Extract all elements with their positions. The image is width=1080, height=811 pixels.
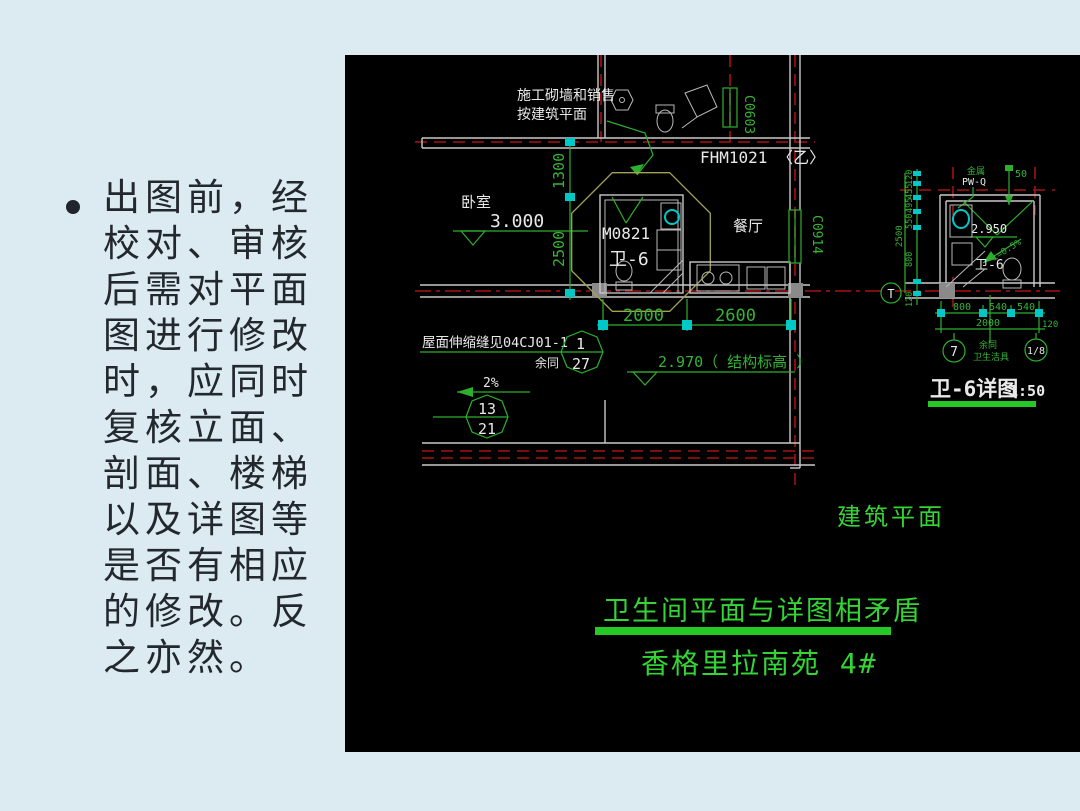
dim-bottom: 800 [953, 302, 971, 313]
dim-left-bottom: 120 [905, 292, 915, 307]
upper-bathroom-fixtures [611, 85, 737, 132]
grid-8-label: 1/8 [1027, 346, 1045, 357]
paragraph-line: 后需对平面 [103, 268, 333, 314]
paragraph-line: 出图前，经 [103, 176, 333, 222]
bullet-dot [66, 200, 80, 214]
bedroom-level: 3.000 [490, 211, 544, 232]
ref2-den: 21 [478, 420, 496, 438]
dim-left-total: 2500 [895, 225, 905, 247]
rest-same: 余同 [535, 355, 559, 370]
paragraph-line: 之亦然。 [103, 636, 333, 682]
pipe-50: 50 [1015, 169, 1027, 180]
horizontal-dimension: 2000 2600 [597, 299, 796, 331]
paragraph-line: 复核立面、 [103, 406, 333, 452]
toilet-icon [1003, 258, 1021, 280]
floor-plan: 施工砌墙和销售 按建筑平面 C0603 FHM1021 〈乙〉 卧室 3.000… [415, 55, 945, 531]
dim-bottom: 540 [1017, 302, 1035, 313]
window-c0603-label: C0603 [741, 95, 756, 134]
sink-icon [747, 267, 765, 289]
plan-caption: 建筑平面 [837, 503, 945, 531]
dim-left: 120 [905, 170, 915, 185]
bath-name-label: 卫-6 [609, 249, 649, 270]
dim-bottom-total: 2000 [976, 318, 1000, 329]
dim-bottom: 540 [989, 302, 1007, 313]
small-note-2: 卫生洁具 [973, 351, 1009, 363]
sink-icon [767, 267, 785, 289]
roof-note: 屋面伸缩缝见04CJ01-1 1 27 余同 [420, 331, 603, 373]
detail-title-text: 卫-6详图 [930, 377, 1018, 401]
dim-bottom-right: 120 [1042, 320, 1058, 330]
window-c0914-label: C0914 [809, 215, 824, 254]
column [939, 283, 955, 298]
dim-2500: 2500 [550, 231, 568, 267]
bathroom: M0821 卫-6 [600, 195, 683, 293]
paragraph-line: 校对、审核 [103, 222, 333, 268]
bedroom-text: 卧室 [461, 193, 491, 211]
slope-text: 2% [483, 376, 499, 391]
paragraph-line: 以及详图等 [103, 498, 333, 544]
paragraph-line: 图进行修改 [103, 314, 333, 360]
title-underline [928, 401, 1036, 407]
detail-title: 卫-6详图 1:50 [928, 377, 1045, 407]
level-2970: 2.970（ 结构标高 ） [658, 353, 811, 371]
basin-icon [665, 210, 679, 224]
dim-2600: 2600 [715, 306, 756, 326]
detail-walls [905, 195, 1055, 298]
grid-t-label: T [887, 287, 894, 301]
dining-label: 餐厅 [733, 217, 763, 235]
small-note-1: 余同 [979, 339, 997, 351]
ref1-num: 1 [576, 335, 585, 353]
grid-7-label: 7 [950, 345, 958, 360]
paragraph-line: 剖面、楼梯 [103, 452, 333, 498]
dim-1300: 1300 [550, 153, 568, 189]
dim-left: 455 [905, 184, 915, 199]
slope-note: 2% [457, 376, 530, 397]
conflict-caption: 卫生间平面与详图相矛盾 [603, 596, 922, 627]
detail-interior: 2.950 i=0.5% 卫-6 [946, 201, 1033, 288]
detail-bottom-dims: 800 540 540 2000 120 [935, 301, 1058, 333]
basin-icon [953, 210, 969, 228]
door-fhm-label: FHM1021 〈乙〉 [700, 148, 825, 167]
paragraph-line: 的修改。反 [103, 590, 333, 636]
paragraph-line: 是否有相应 [103, 544, 333, 590]
note-line1: 施工砌墙和销售 [517, 88, 615, 104]
level-2950: 2.950 [971, 222, 1007, 236]
dim-left: 495 [905, 198, 915, 213]
project-caption: 香格里拉南苑 4# [641, 647, 878, 680]
detail-bath-name: 卫-6 [975, 258, 1004, 273]
slide-paragraph: 出图前，经 校对、审核 后需对平面 图进行修改 时，应同时 复核立面、 剖面、楼… [103, 176, 333, 682]
note-line2: 按建筑平面 [517, 107, 587, 123]
caption-underline [595, 627, 891, 635]
cad-screenshot: 施工砌墙和销售 按建筑平面 C0603 FHM1021 〈乙〉 卧室 3.000… [345, 55, 1080, 752]
captions: 卫生间平面与详图相矛盾 香格里拉南苑 4# [595, 596, 922, 680]
shower-icon [685, 85, 717, 117]
detail-drawing: 120 455 495 550 800 2500 120 金属 PW-Q 50 … [881, 165, 1060, 407]
ref2-num: 13 [478, 400, 496, 418]
note-metal: 金属 [967, 165, 985, 177]
cad-drawing: 施工砌墙和销售 按建筑平面 C0603 FHM1021 〈乙〉 卧室 3.000… [345, 55, 1080, 752]
dim-left: 800 [905, 252, 915, 267]
dim-2000: 2000 [623, 306, 664, 326]
structural-level: 2.970（ 结构标高 ） [627, 353, 811, 385]
note-pwq: PW-Q [962, 177, 986, 188]
ref1-den: 27 [572, 355, 590, 373]
roof-note-text: 屋面伸缩缝见04CJ01-1 [422, 335, 568, 351]
dim-left: 550 [905, 214, 915, 229]
paragraph-line: 时，应同时 [103, 360, 333, 406]
door-m0821-label: M0821 [602, 224, 650, 243]
detail-ref-2: 13 21 [433, 395, 508, 438]
dining-kitchen: 餐厅 [690, 217, 790, 293]
detail-scale: 1:50 [1009, 382, 1045, 400]
